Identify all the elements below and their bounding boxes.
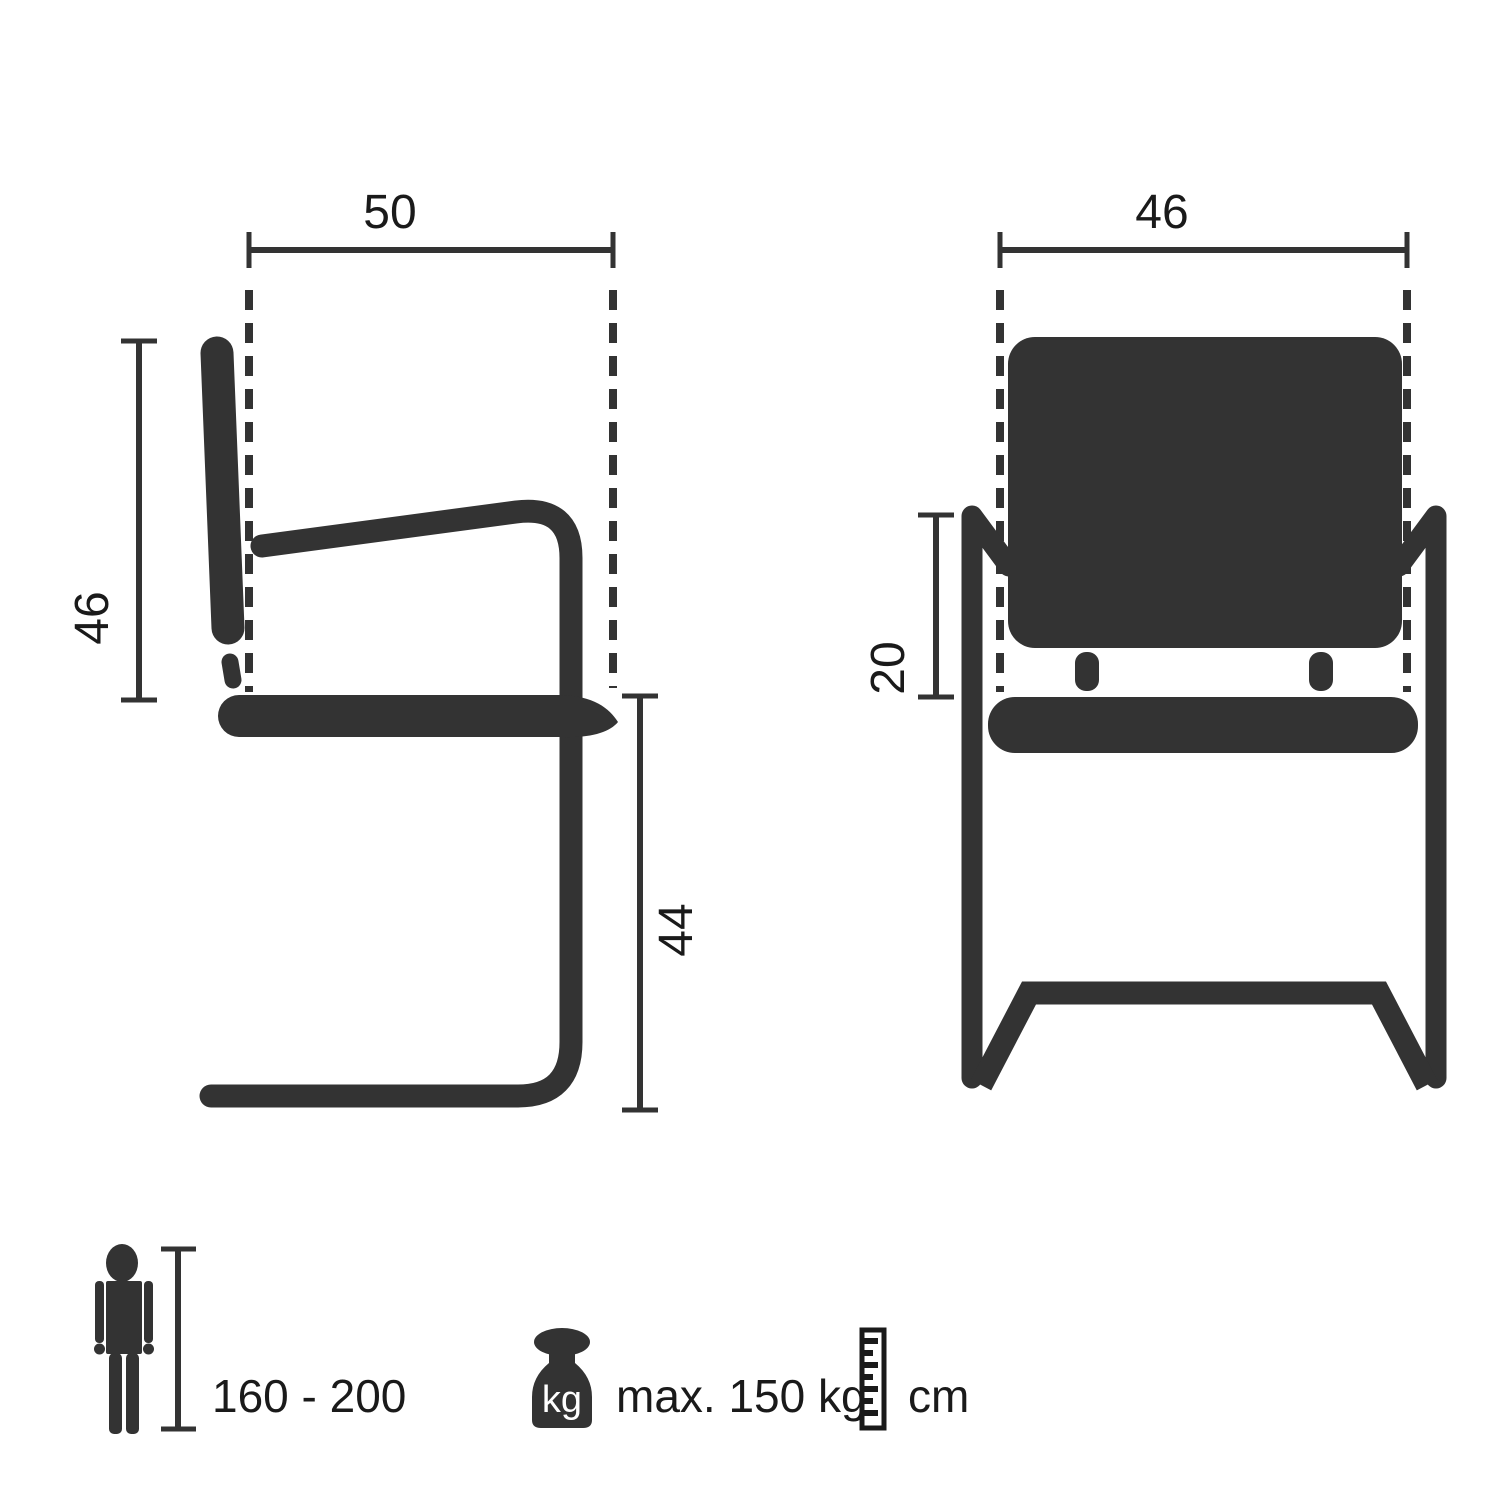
- person-leg-right: [126, 1353, 139, 1434]
- front-armrest-gap-label: 20: [862, 641, 915, 694]
- side-depth-label: 50: [363, 186, 416, 239]
- weight-unit-badge-label: kg: [542, 1379, 582, 1421]
- person-head: [106, 1244, 138, 1282]
- side-depth-dimension: 50: [249, 186, 613, 692]
- max-load-label: max. 150 kg: [616, 1370, 867, 1422]
- front-chair: [972, 337, 1436, 1085]
- side-view: 50 46 44: [66, 186, 703, 1110]
- side-frame-tube: [211, 511, 571, 1096]
- measurement-unit-label: cm: [908, 1370, 969, 1422]
- person-arm-left: [95, 1281, 104, 1343]
- person-torso: [106, 1281, 142, 1354]
- legend-row: 160 - 200 kg max. 150 kg cm: [94, 1244, 969, 1434]
- front-backrest: [1008, 337, 1402, 648]
- front-armrest-gap-dimension: 20: [862, 515, 954, 697]
- side-backrest-support: [230, 662, 233, 680]
- ruler-icon: [862, 1330, 884, 1428]
- front-seat: [988, 697, 1418, 753]
- front-backrest-tab-right: [1309, 652, 1333, 691]
- front-base-runner: [981, 993, 1427, 1085]
- person-arm-right: [144, 1281, 153, 1343]
- side-backrest-height-label: 46: [66, 591, 119, 644]
- chair-dimension-diagram: 50 46 44: [0, 0, 1500, 1500]
- person-height-measure: [161, 1249, 196, 1429]
- person-hand-right: [143, 1344, 154, 1355]
- side-seat-height-label: 44: [650, 903, 703, 956]
- side-backrest-height-dimension: 46: [66, 341, 157, 700]
- person-hand-left: [94, 1344, 105, 1355]
- person-leg-left: [109, 1353, 122, 1434]
- weight-kg-icon: kg: [532, 1328, 592, 1428]
- side-chair: [211, 353, 618, 1096]
- side-backrest: [217, 353, 228, 628]
- side-seat: [218, 695, 618, 737]
- side-seat-height-dimension: 44: [622, 696, 703, 1110]
- person-height-range-label: 160 - 200: [212, 1370, 406, 1422]
- person-height-icon: [94, 1244, 154, 1434]
- diagram-svg: 50 46 44: [0, 0, 1500, 1500]
- front-width-label: 46: [1135, 186, 1188, 239]
- front-backrest-tab-left: [1075, 652, 1099, 691]
- front-view: 46 20: [862, 186, 1436, 1085]
